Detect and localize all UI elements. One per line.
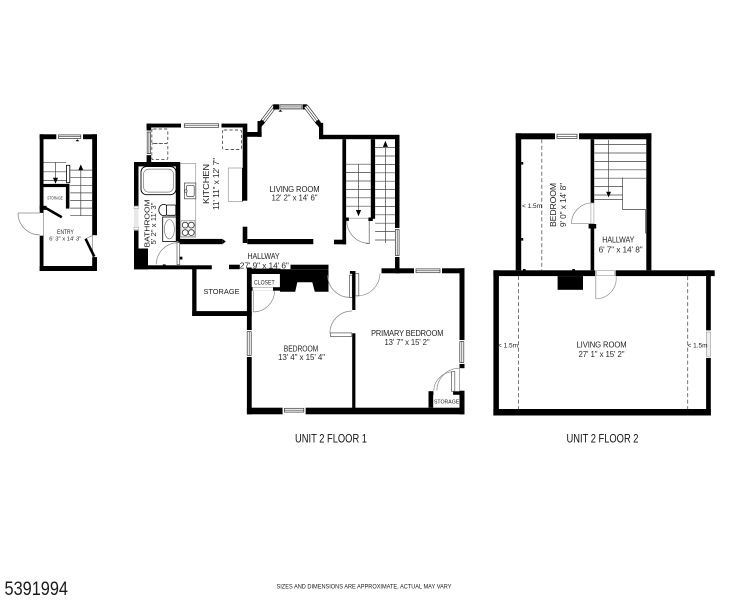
svg-text:CLOSET: CLOSET [254, 280, 275, 287]
svg-text:LIVING ROOM: LIVING ROOM [577, 340, 627, 349]
svg-text:LIVING ROOM: LIVING ROOM [270, 185, 320, 194]
svg-text:STORAGE: STORAGE [47, 196, 63, 201]
svg-text:5' 2" x 11' 3": 5' 2" x 11' 3" [149, 202, 158, 244]
svg-text:PRIMARY BEDROOM: PRIMARY BEDROOM [371, 329, 444, 338]
svg-text:UNIT 2 FLOOR 2: UNIT 2 FLOOR 2 [567, 434, 639, 446]
svg-text:27' 1" x 15' 2": 27' 1" x 15' 2" [579, 350, 625, 359]
svg-text:< 1.5m: < 1.5m [498, 343, 518, 350]
svg-text:BEDROOM: BEDROOM [549, 183, 558, 227]
svg-text:13' 7" x 15' 2": 13' 7" x 15' 2" [385, 338, 430, 347]
svg-text:SIZES AND DIMENSIONS ARE APPRO: SIZES AND DIMENSIONS ARE APPROXIMATE, AC… [277, 584, 453, 591]
svg-text:12' 2" x 14' 6": 12' 2" x 14' 6" [272, 194, 318, 203]
svg-text:13' 4" x 15' 4": 13' 4" x 15' 4" [278, 353, 325, 362]
svg-text:STORAGE: STORAGE [434, 399, 460, 405]
svg-text:ENTRY: ENTRY [57, 230, 74, 236]
svg-text:< 1.5m: < 1.5m [522, 203, 542, 210]
svg-text:UNIT 2 FLOOR 1: UNIT 2 FLOOR 1 [295, 434, 367, 446]
svg-text:27' 9" x 14' 6": 27' 9" x 14' 6" [240, 261, 289, 270]
svg-text:HALLWAY: HALLWAY [248, 252, 281, 261]
svg-text:KITCHEN: KITCHEN [202, 164, 211, 204]
svg-text:STORAGE: STORAGE [204, 289, 240, 296]
svg-text:9' 0" x 14' 8": 9' 0" x 14' 8" [559, 183, 568, 227]
svg-text:11' 11" x 12' 7": 11' 11" x 12' 7" [212, 158, 221, 210]
svg-text:5391994: 5391994 [5, 578, 69, 600]
svg-text:6' 3" x 14' 3": 6' 3" x 14' 3" [49, 237, 81, 243]
svg-text:6' 7" x 14' 8": 6' 7" x 14' 8" [599, 246, 643, 255]
svg-text:HALLWAY: HALLWAY [602, 235, 635, 244]
svg-text:< 1.5m: < 1.5m [687, 343, 707, 350]
